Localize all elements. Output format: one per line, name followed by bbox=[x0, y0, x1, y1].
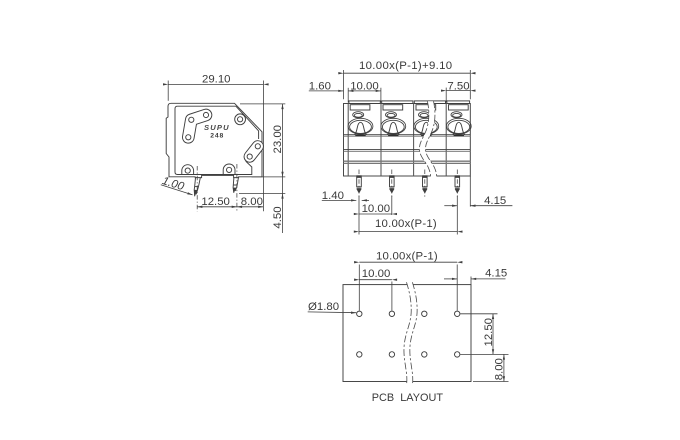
svg-text:4.15: 4.15 bbox=[485, 267, 507, 279]
svg-text:10.00: 10.00 bbox=[362, 203, 391, 215]
svg-text:10.00: 10.00 bbox=[350, 80, 379, 92]
svg-text:10.00: 10.00 bbox=[362, 268, 391, 280]
svg-text:23.00: 23.00 bbox=[272, 125, 284, 154]
svg-text:10.00x(P-1): 10.00x(P-1) bbox=[376, 250, 438, 262]
svg-text:8.00: 8.00 bbox=[241, 196, 263, 208]
svg-text:1.40: 1.40 bbox=[322, 190, 344, 202]
svg-text:29.10: 29.10 bbox=[202, 73, 231, 85]
svg-text:8.00: 8.00 bbox=[493, 358, 505, 380]
svg-text:10.00x(P-1)+9.10: 10.00x(P-1)+9.10 bbox=[359, 60, 452, 72]
svg-text:4.15: 4.15 bbox=[484, 195, 506, 207]
svg-text:12.50: 12.50 bbox=[483, 318, 495, 347]
svg-text:Ø1.80: Ø1.80 bbox=[308, 301, 339, 313]
svg-text:1.60: 1.60 bbox=[309, 80, 331, 92]
svg-text:10.00x(P-1): 10.00x(P-1) bbox=[375, 218, 437, 230]
svg-text:4.50: 4.50 bbox=[272, 206, 284, 228]
svg-text:SUPU: SUPU bbox=[204, 123, 230, 132]
svg-text:248: 248 bbox=[210, 133, 224, 140]
svg-text:7.50: 7.50 bbox=[447, 80, 469, 92]
svg-text:PCB LAYOUT: PCB LAYOUT bbox=[372, 392, 444, 404]
svg-text:12.50: 12.50 bbox=[201, 196, 230, 208]
